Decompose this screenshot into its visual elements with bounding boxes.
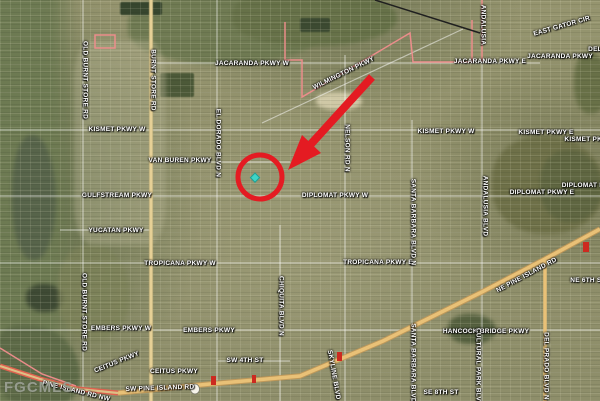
property-marker-icon <box>250 173 259 182</box>
arrow-shaft <box>311 77 372 144</box>
mls-watermark: FGCMLS <box>4 379 73 396</box>
aerial-map: JACARANDA PKWY WJACARANDA PKWY EJACARAND… <box>0 0 600 401</box>
annotation-layer <box>0 0 600 401</box>
highlight-circle <box>238 155 282 199</box>
